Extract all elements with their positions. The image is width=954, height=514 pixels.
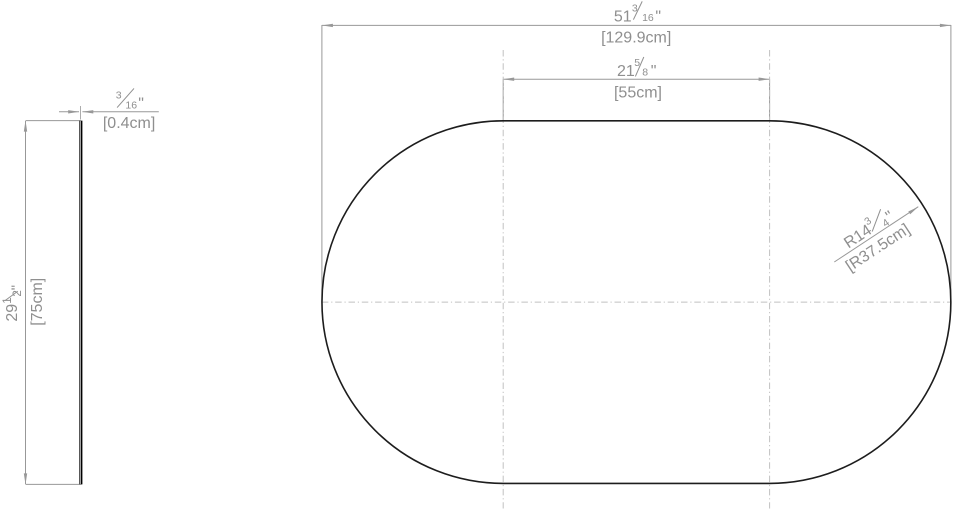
svg-text:51: 51 <box>614 9 632 26</box>
svg-text:[55cm]: [55cm] <box>614 84 662 101</box>
svg-text:29: 29 <box>4 304 21 322</box>
svg-text:8: 8 <box>642 66 648 78</box>
svg-text:16: 16 <box>642 12 654 24</box>
svg-text:[129.9cm]: [129.9cm] <box>601 30 671 47</box>
svg-text:[75cm]: [75cm] <box>29 278 46 326</box>
svg-text:": " <box>138 95 144 112</box>
svg-text:": " <box>8 285 25 290</box>
svg-text:": " <box>651 63 657 80</box>
svg-text:21: 21 <box>617 63 635 80</box>
svg-text:16: 16 <box>125 100 137 112</box>
svg-text:3: 3 <box>116 90 122 102</box>
svg-text:": " <box>655 9 661 26</box>
svg-text:[0.4cm]: [0.4cm] <box>103 115 155 132</box>
